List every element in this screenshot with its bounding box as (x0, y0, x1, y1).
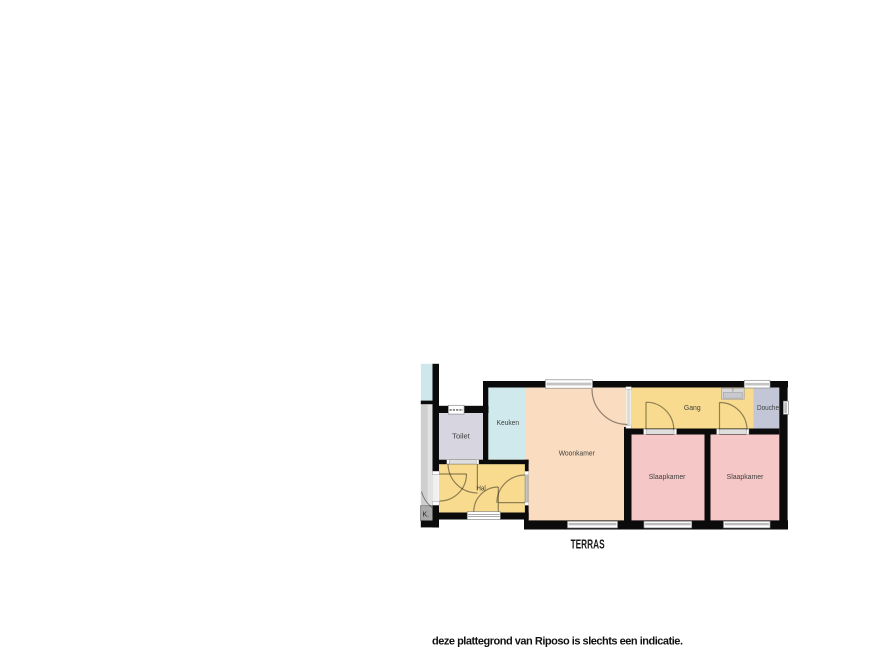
svg-text:Slaapkamer: Slaapkamer (649, 472, 686, 481)
svg-text:Gang: Gang (684, 403, 701, 412)
svg-text:Douche: Douche (757, 403, 779, 412)
svg-text:Woonkamer: Woonkamer (559, 449, 596, 458)
svg-text:K.: K. (423, 512, 430, 519)
svg-text:Toilet: Toilet (452, 431, 471, 440)
svg-text:Keuken: Keuken (497, 418, 519, 427)
svg-text:Hal: Hal (476, 483, 486, 492)
svg-text:Slaapkamer: Slaapkamer (727, 472, 764, 481)
svg-text:TERRAS: TERRAS (571, 538, 605, 552)
svg-text:deze plattegrond van Riposo is: deze plattegrond van Riposo is slechts e… (432, 636, 683, 648)
